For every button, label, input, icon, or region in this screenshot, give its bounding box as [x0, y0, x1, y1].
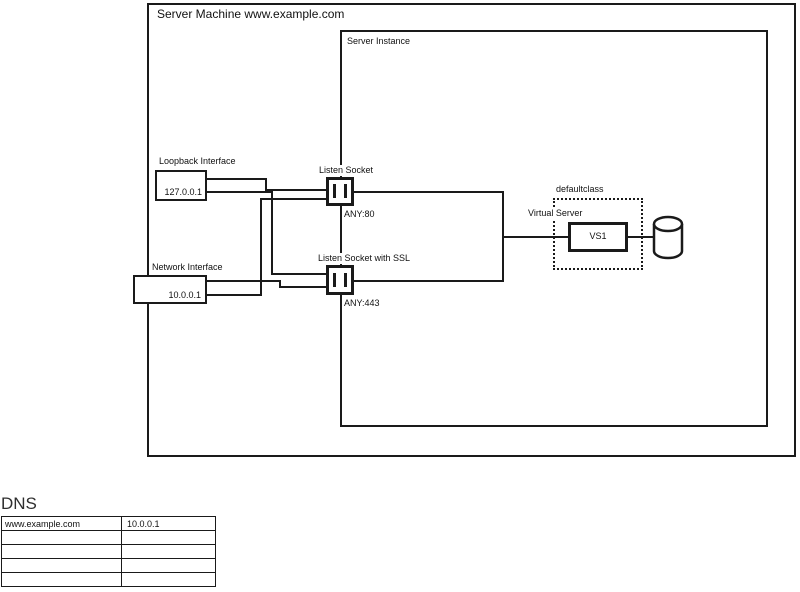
database-cylinder-icon: [650, 213, 690, 263]
network-address: 10.0.0.1: [168, 290, 201, 300]
loopback-interface-box: 127.0.0.1: [155, 170, 207, 201]
loopback-interface-label: Loopback Interface: [159, 156, 236, 167]
server-machine-title: Server Machine www.example.com: [157, 7, 344, 21]
listen-socket-ssl-label: Listen Socket with SSL: [317, 253, 411, 264]
network-interface-box: 10.0.0.1: [133, 275, 207, 304]
listen-socket-icon: [326, 177, 354, 206]
listen-socket-ssl-binding: ANY:443: [344, 298, 380, 309]
socket-pin-icon: [333, 184, 336, 198]
connector-network-to-socket443: [207, 281, 328, 287]
defaultclass-label: defaultclass: [556, 184, 604, 195]
listen-socket-binding: ANY:80: [344, 209, 375, 220]
connector-loopback-to-socket443: [207, 192, 328, 274]
connector-loopback-to-socket80: [207, 179, 328, 190]
network-interface-label: Network Interface: [152, 262, 223, 273]
virtual-server-label: Virtual Server: [527, 208, 583, 219]
socket-pin-icon: [333, 273, 336, 287]
vs1-box: VS1: [568, 222, 628, 252]
connector-sockets-bus: [352, 192, 503, 281]
listen-socket-label: Listen Socket: [318, 165, 374, 176]
socket-pin-icon: [344, 273, 347, 287]
loopback-address: 127.0.0.1: [164, 187, 202, 197]
server-instance-title: Server Instance: [347, 36, 410, 47]
listen-socket-ssl-icon: [326, 265, 354, 295]
socket-pin-icon: [344, 184, 347, 198]
vs1-name: VS1: [589, 231, 606, 241]
connector-lines: [0, 0, 800, 592]
diagram-canvas: Server Machine www.example.com Server In…: [0, 0, 800, 592]
